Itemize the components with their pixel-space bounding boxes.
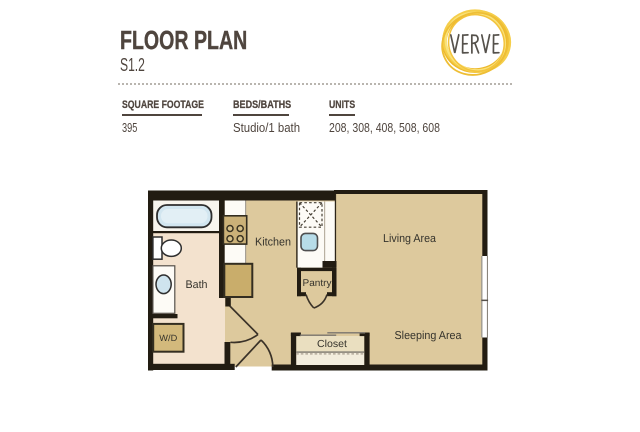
svg-text:Pantry: Pantry xyxy=(303,278,332,289)
svg-text:Bath: Bath xyxy=(186,279,208,291)
svg-text:Kitchen: Kitchen xyxy=(255,236,291,248)
svg-text:Sleeping Area: Sleeping Area xyxy=(395,330,463,342)
svg-text:W/D: W/D xyxy=(159,333,178,343)
svg-text:Closet: Closet xyxy=(317,339,347,350)
svg-text:Living Area: Living Area xyxy=(383,233,437,245)
